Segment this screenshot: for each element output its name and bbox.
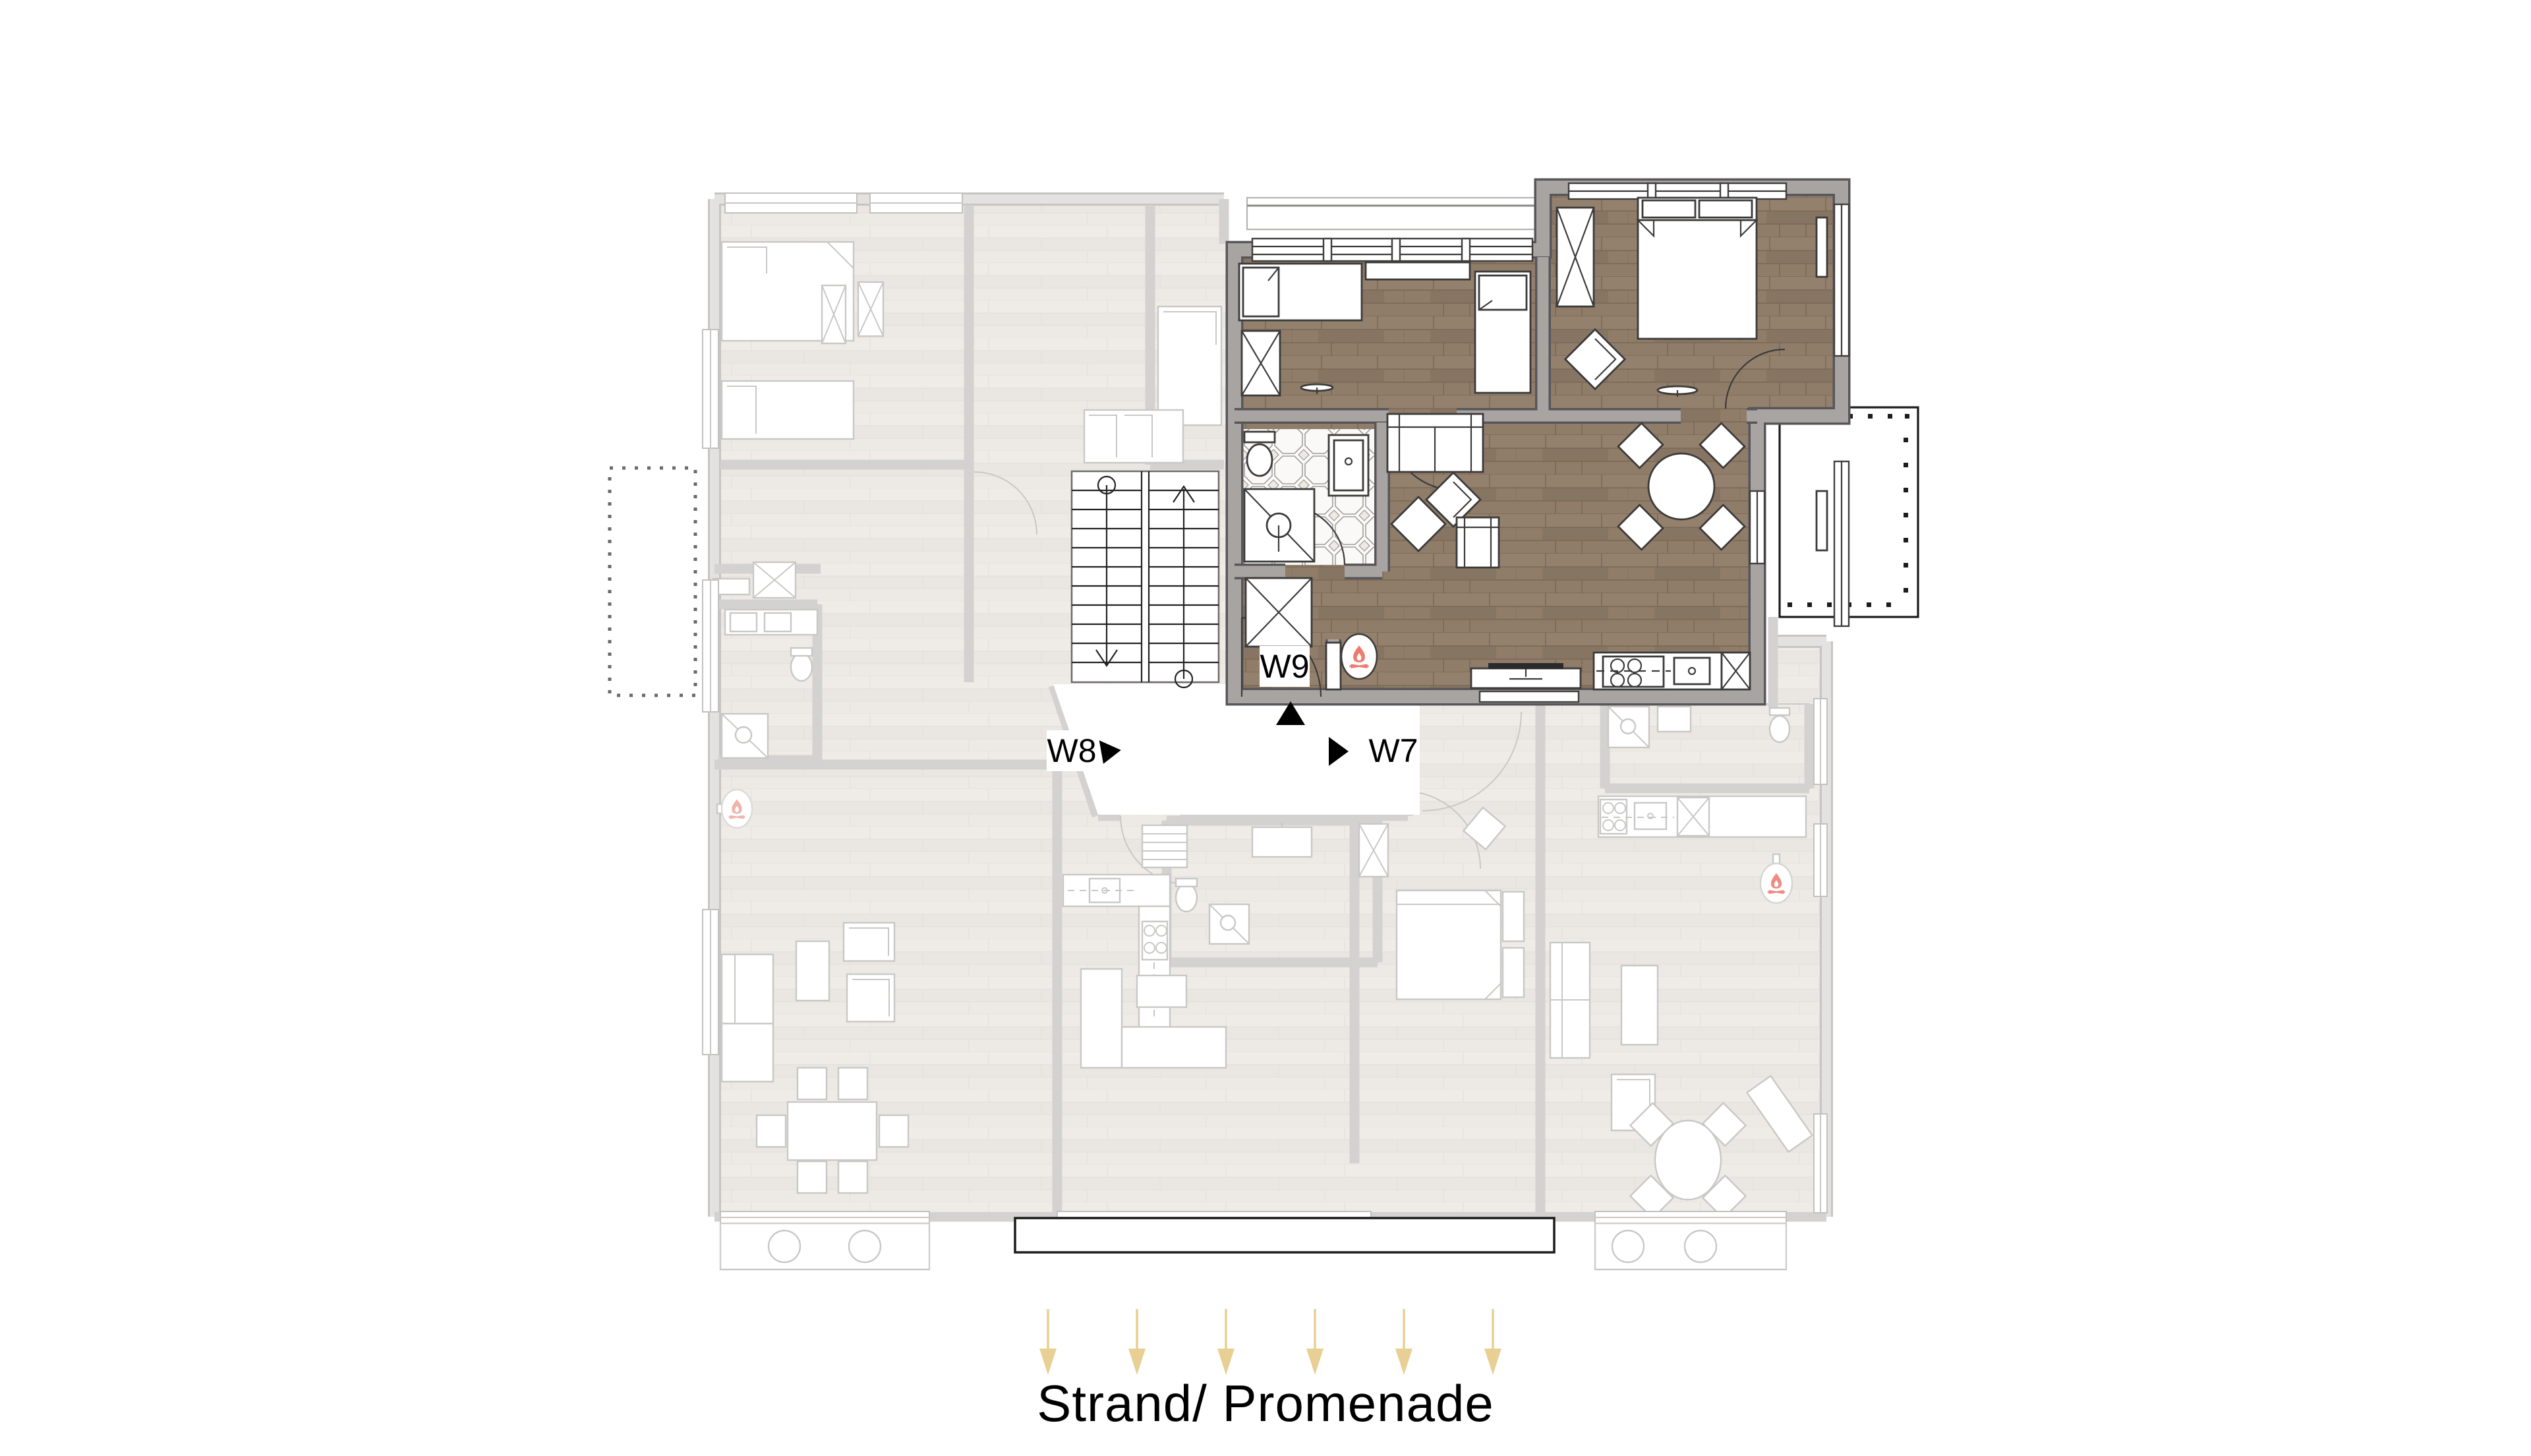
street-direction-arrow [1128, 1309, 1146, 1375]
street-direction-arrow [1395, 1309, 1412, 1375]
floorplan-canvas: W9 W8 W7 Strand/ Promenade [0, 0, 2531, 1456]
terrace-dashed-left [610, 468, 695, 695]
unit-w7-label[interactable]: W7 [1368, 730, 1418, 771]
street-arrows [1039, 1309, 1501, 1375]
street-direction-arrow [1306, 1309, 1324, 1375]
balcony-center [1015, 1218, 1554, 1252]
street-label: Strand/ Promenade [1037, 1374, 1494, 1432]
floorplan-page: W9 W8 W7 Strand/ Promenade [0, 0, 2531, 1456]
street-direction-arrow [1039, 1309, 1057, 1375]
unit-w7-label-text[interactable]: W7 [1369, 732, 1418, 769]
street-direction-arrow [1217, 1309, 1235, 1375]
unit-w9-label[interactable]: W9 [1260, 646, 1310, 687]
kitchen-counter [1594, 653, 1750, 689]
unit-w9-label-text[interactable]: W9 [1260, 648, 1310, 685]
stairwell [1072, 471, 1219, 687]
street-direction-arrow [1484, 1309, 1501, 1375]
unit-w8-label[interactable]: W8 [1047, 730, 1097, 771]
unit-w9[interactable] [1235, 183, 1849, 702]
unit-w8-label-text[interactable]: W8 [1047, 732, 1097, 769]
